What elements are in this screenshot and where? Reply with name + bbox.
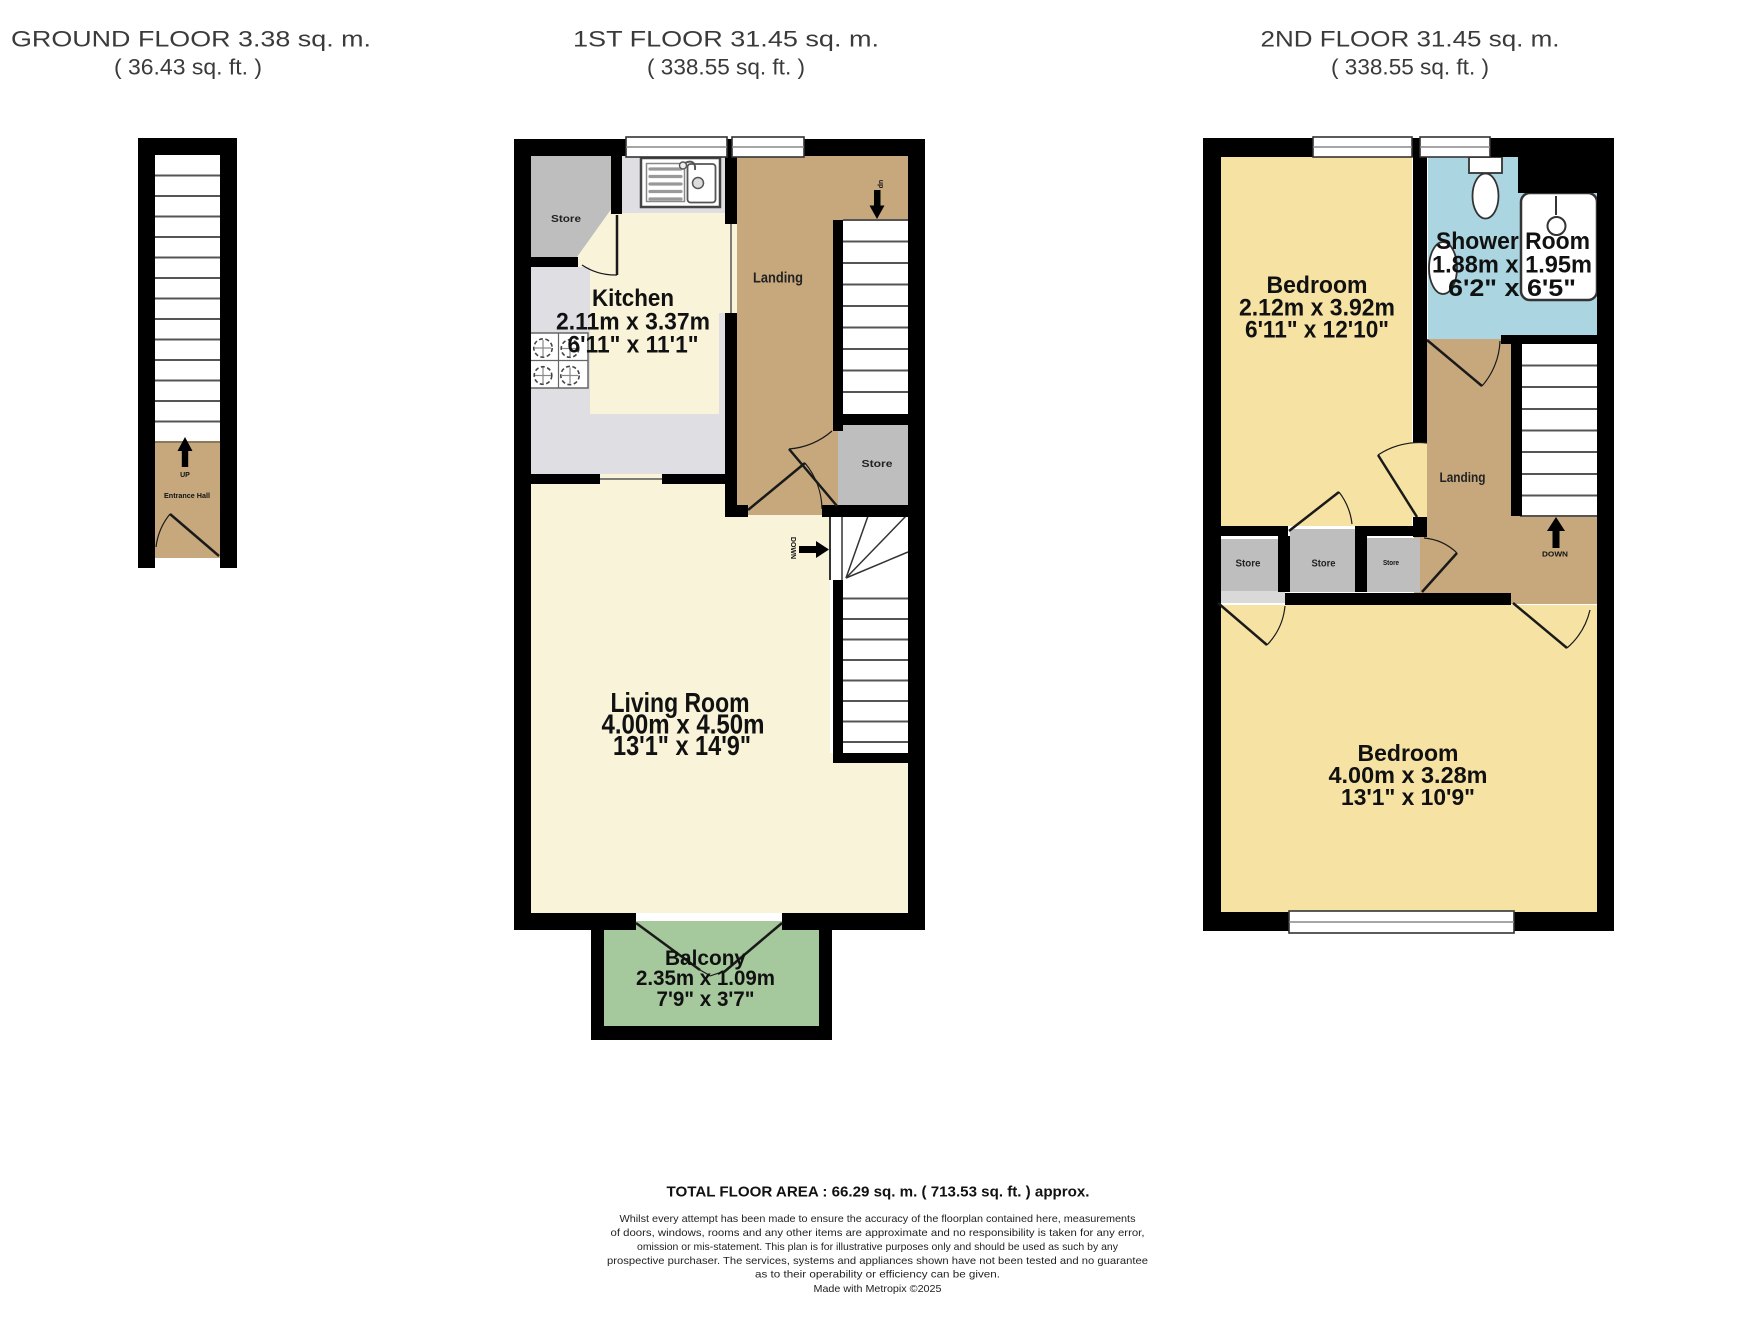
- svg-text:Store: Store: [1383, 560, 1399, 567]
- svg-text:6'11" x 12'10": 6'11" x 12'10": [1245, 317, 1389, 344]
- svg-text:2ND FLOOR 31.45 sq. m.: 2ND FLOOR 31.45 sq. m.: [1261, 27, 1560, 52]
- svg-text:DOWN: DOWN: [789, 537, 796, 559]
- svg-text:UP: UP: [180, 472, 190, 479]
- svg-text:Landing: Landing: [753, 270, 803, 287]
- svg-text:2.35m x 1.09m: 2.35m x 1.09m: [636, 967, 775, 990]
- svg-text:of doors, windows, rooms and a: of doors, windows, rooms and any other i…: [611, 1228, 1145, 1239]
- svg-text:Store: Store: [551, 213, 581, 225]
- svg-text:up: up: [877, 180, 884, 189]
- svg-text:omission or mis-statement. Thi: omission or mis-statement. This plan is …: [637, 1242, 1119, 1253]
- svg-text:Whilst every attempt has been: Whilst every attempt has been made to en…: [620, 1214, 1136, 1225]
- svg-text:7'9" x 3'7": 7'9" x 3'7": [657, 988, 755, 1011]
- svg-text:( 36.43 sq. ft. ): ( 36.43 sq. ft. ): [114, 55, 262, 80]
- svg-text:as to their operability or eff: as to their operability or efficiency ca…: [755, 1270, 1000, 1281]
- svg-text:Landing: Landing: [1440, 469, 1486, 485]
- svg-text:13'1" x 10'9": 13'1" x 10'9": [1341, 784, 1475, 810]
- svg-text:( 338.55 sq. ft. ): ( 338.55 sq. ft. ): [1331, 55, 1489, 80]
- svg-text:DOWN: DOWN: [1542, 552, 1568, 559]
- svg-text:Store: Store: [1236, 558, 1261, 570]
- svg-text:Made with Metropix ©2025: Made with Metropix ©2025: [814, 1284, 942, 1295]
- svg-text:Store: Store: [862, 458, 893, 470]
- svg-text:Entrance Hall: Entrance Hall: [164, 493, 210, 500]
- svg-text:Store: Store: [1312, 558, 1336, 570]
- svg-text:TOTAL FLOOR AREA : 66.29 sq. m: TOTAL FLOOR AREA : 66.29 sq. m. ( 713.53…: [667, 1184, 1090, 1201]
- svg-text:13'1" x 14'9": 13'1" x 14'9": [613, 730, 751, 761]
- svg-text:( 338.55 sq. ft. ): ( 338.55 sq. ft. ): [647, 55, 805, 80]
- svg-text:GROUND FLOOR 3.38 sq. m.: GROUND FLOOR 3.38 sq. m.: [11, 27, 371, 52]
- svg-text:6'11" x 11'1": 6'11" x 11'1": [568, 332, 699, 359]
- svg-text:prospective purchaser. The ser: prospective purchaser. The services, sys…: [607, 1256, 1148, 1267]
- svg-text:1ST FLOOR 31.45 sq. m.: 1ST FLOOR 31.45 sq. m.: [573, 27, 879, 52]
- svg-text:6'2" x 6'5": 6'2" x 6'5": [1448, 275, 1576, 302]
